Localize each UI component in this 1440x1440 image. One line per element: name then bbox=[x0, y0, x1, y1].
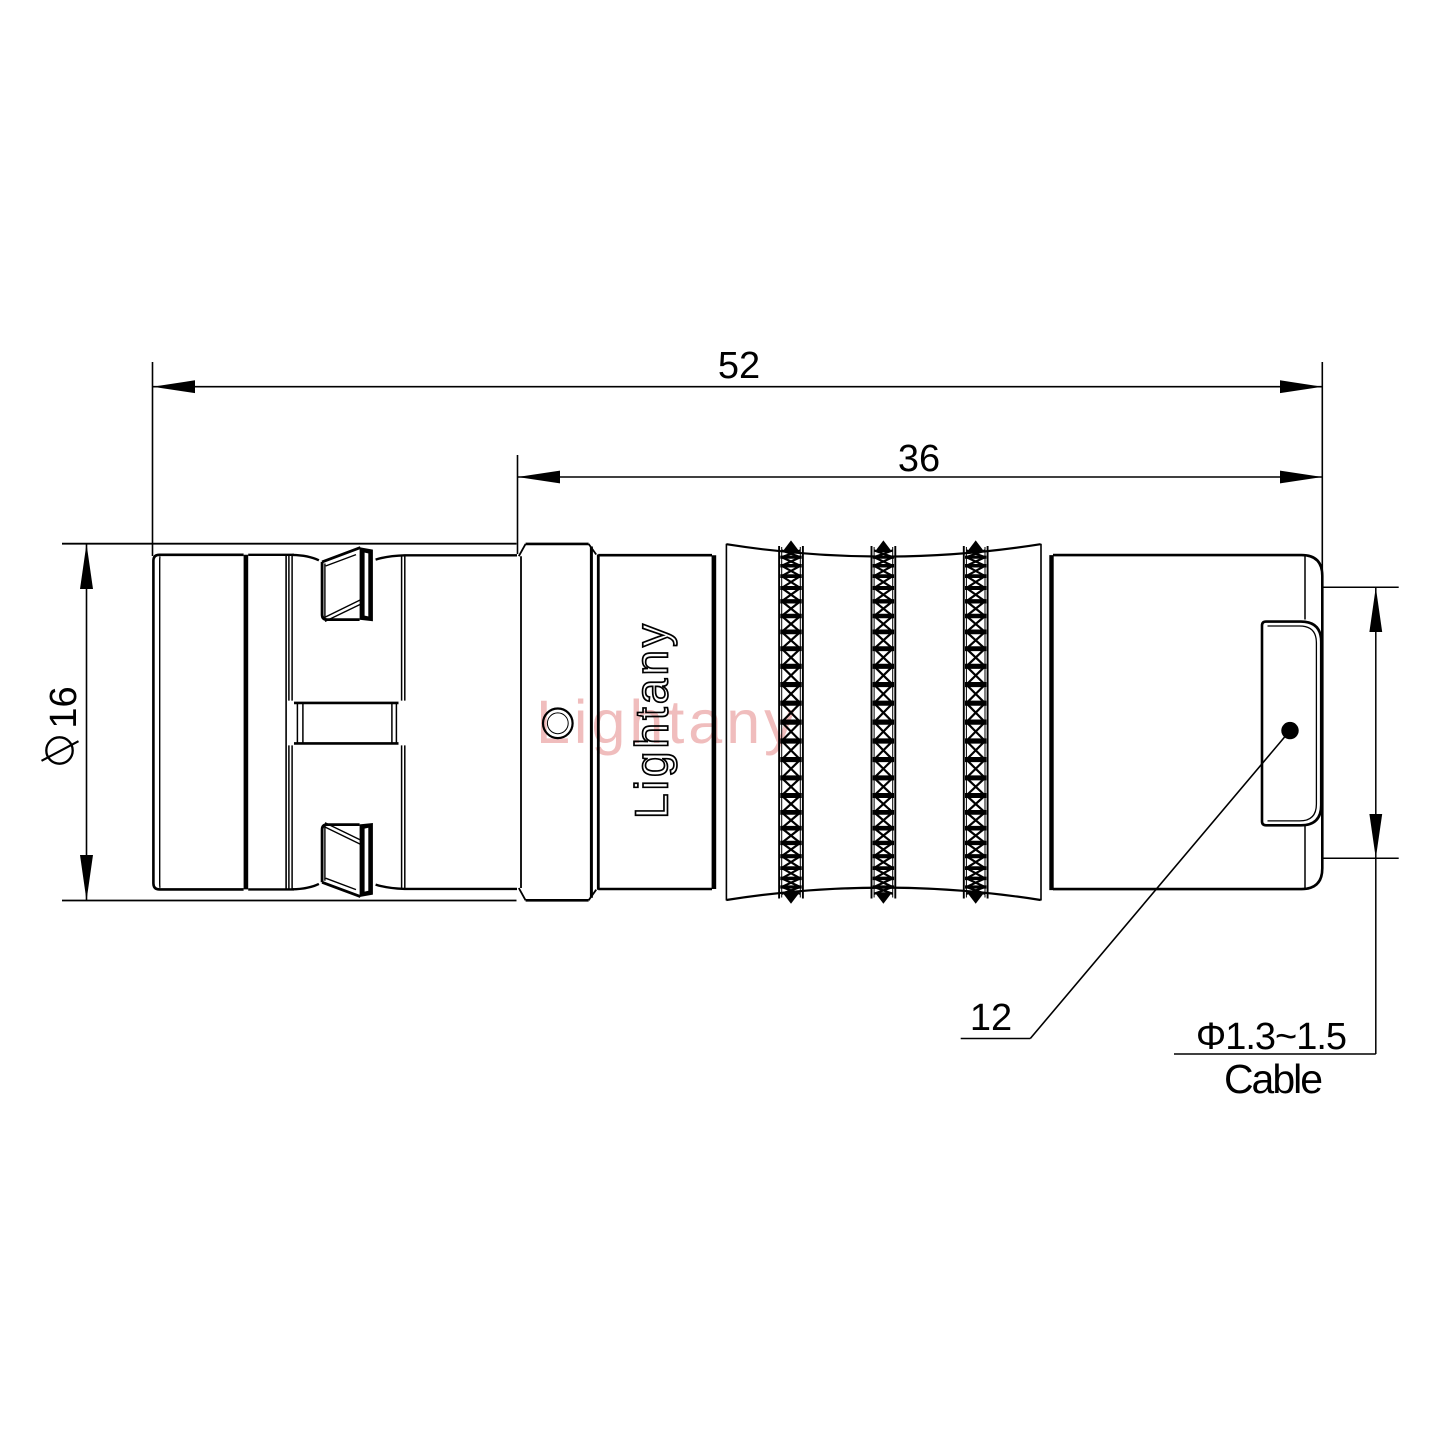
svg-text:Lightany: Lightany bbox=[626, 621, 678, 819]
svg-text:52: 52 bbox=[718, 345, 760, 387]
svg-text:12: 12 bbox=[970, 997, 1012, 1039]
svg-text:Cable: Cable bbox=[1224, 1056, 1321, 1102]
svg-text:36: 36 bbox=[898, 438, 940, 480]
svg-text:Φ1.3~1.5: Φ1.3~1.5 bbox=[1196, 1016, 1346, 1058]
svg-text:16: 16 bbox=[43, 686, 85, 728]
